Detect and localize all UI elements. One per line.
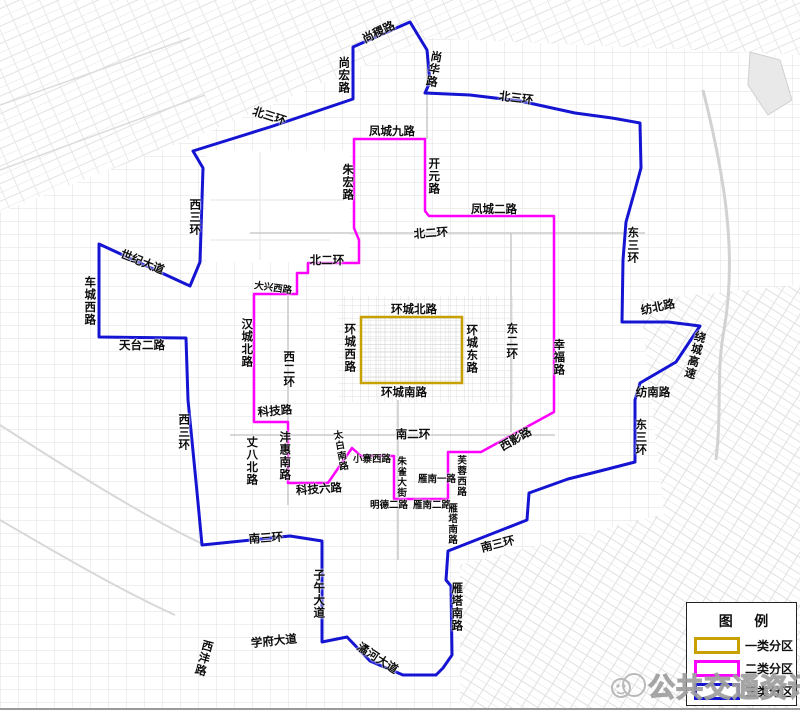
class3-label: 三类分区 xyxy=(745,683,793,700)
legend-row-class3: 三类分区 xyxy=(694,683,796,700)
class2-label: 二类分区 xyxy=(745,660,793,677)
legend-row-class1: 一类分区 xyxy=(694,637,796,654)
class2-swatch xyxy=(694,660,740,677)
legend-title: 图 例 xyxy=(700,611,796,631)
class1-swatch xyxy=(694,637,740,654)
zone-boundaries xyxy=(0,0,800,716)
class3-zone-boundary xyxy=(99,22,700,675)
map-frame-line xyxy=(0,708,800,710)
class1-label: 一类分区 xyxy=(745,637,793,654)
legend-row-class2: 二类分区 xyxy=(694,660,796,677)
class1-zone-boundary xyxy=(361,317,462,383)
zoning-map: 尚稷路尚宏路尚华路北三环北三环凤城九路朱宏路开元路凤城二路北二环北二环西三环世纪… xyxy=(0,0,800,716)
class3-swatch xyxy=(694,683,740,700)
legend-box: 图 例 一类分区 二类分区 三类分区 xyxy=(686,602,797,706)
class2-zone-boundary xyxy=(254,139,554,499)
